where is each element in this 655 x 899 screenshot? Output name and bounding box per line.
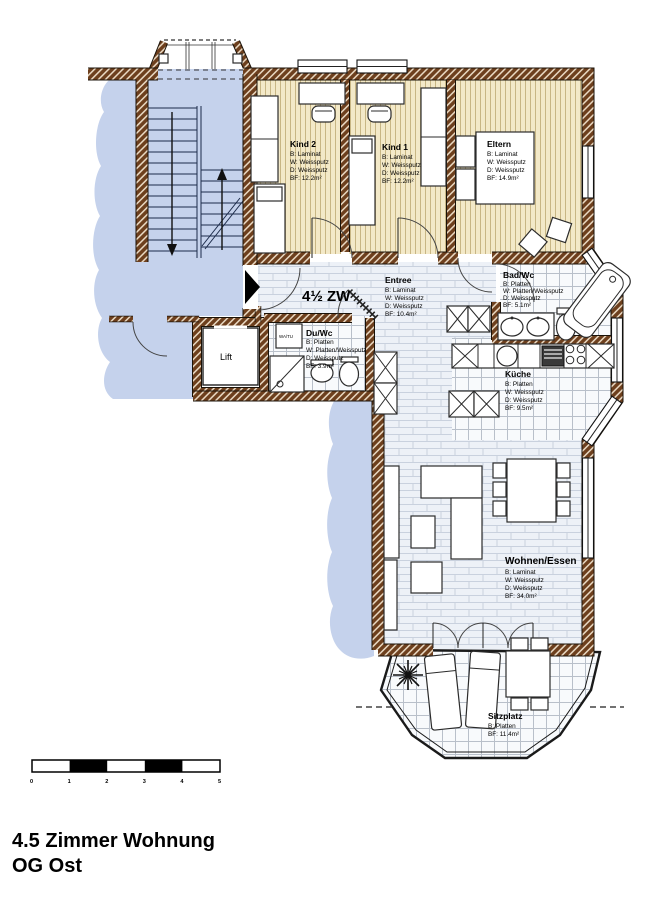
kind2-desk [299, 83, 345, 104]
badwc-area: BF: 5.1m² [503, 302, 531, 309]
kueche-walls: W: Weissputz [505, 389, 544, 396]
kind2-walls: W: Weissputz [290, 159, 329, 166]
wohnen-area: BF: 34.0m² [505, 593, 537, 600]
terrace-chair [511, 638, 528, 650]
entree-floor: B: Laminat [385, 287, 416, 294]
kind1-desk [357, 83, 404, 104]
duwc-name: Du/Wc [306, 328, 333, 338]
duwc-toilet [341, 357, 358, 362]
floor-plan-drawing: Lift WA/TU [0, 0, 655, 899]
window-kind2 [298, 60, 347, 73]
floor-plan-page: Lift WA/TU [0, 0, 655, 899]
kueche-area: BF: 9.5m² [505, 405, 533, 412]
terrace-chair [531, 638, 548, 650]
sitzplatz-name: Sitzplatz [488, 711, 522, 721]
sofa [451, 498, 482, 559]
kueche-fixtures [452, 344, 614, 368]
scale-tick: 3 [143, 779, 146, 785]
entree-walls: W: Weissputz [385, 295, 424, 302]
apartment-type-label: 4½ ZW [302, 288, 351, 305]
wohnen-name: Wohnen/Essen [505, 556, 577, 567]
title-line-1: 4.5 Zimmer Wohnung [12, 830, 215, 852]
eltern-name: Eltern [487, 139, 511, 149]
terrace-chair [511, 698, 528, 710]
title-line-2: OG Ost [12, 855, 82, 877]
badwc-ceiling: D: Weissputz [503, 295, 541, 302]
wohnen-floor: B: Laminat [505, 569, 536, 576]
lift: Lift [203, 327, 258, 385]
kueche-name: Küche [505, 369, 531, 379]
duwc-walls: W: Platten/Weissputz [306, 347, 367, 354]
kind1-area: BF: 12.2m² [382, 178, 414, 185]
scale-tick: 2 [105, 779, 108, 785]
eltern-walls: W: Weissputz [487, 159, 526, 166]
badwc-name: Bad/Wc [503, 270, 534, 280]
scale-tick: 5 [218, 779, 221, 785]
common-area-side-strip [327, 398, 374, 659]
window-kind1 [357, 60, 407, 73]
kind2-area: BF: 12.2m² [290, 175, 322, 182]
window-wohnen [583, 458, 594, 558]
kind1-ceiling: D: Weissputz [382, 170, 420, 177]
sitzplatz-floor: B: Platten [488, 723, 516, 730]
wohnen-ceiling: D: Weissputz [505, 585, 543, 592]
badwc-walls: W: Platten/Weissputz [503, 288, 564, 295]
kind2-ceiling: D: Weissputz [290, 167, 328, 174]
window-eltern [583, 146, 594, 198]
entree-ceiling: D: Weissputz [385, 303, 423, 310]
lift-label: Lift [220, 352, 233, 362]
wohnen-walls: W: Weissputz [505, 577, 544, 584]
eltern-ceiling: D: Weissputz [487, 167, 525, 174]
entree-area: BF: 10.4m² [385, 311, 417, 318]
watu-label: WA/TU [279, 334, 293, 339]
kitchen-sink [497, 346, 517, 366]
kitchen-counter [452, 344, 614, 368]
kind2-floor: B: Laminat [290, 151, 321, 158]
kitchen-oven [542, 346, 564, 366]
dining-table [507, 459, 556, 522]
kueche-floor: B: Platten [505, 381, 533, 388]
eltern-floor: B: Laminat [487, 151, 518, 158]
sideboard [384, 466, 399, 558]
kind1-floor: B: Laminat [382, 154, 413, 161]
entree-name: Entree [385, 275, 412, 285]
duwc-floor: B: Platten [306, 339, 334, 346]
sitzplatz-area: BF: 11.4m² [488, 731, 519, 738]
terrace-chair [531, 698, 548, 710]
badwc-floor: B: Platten [503, 281, 531, 288]
plant [393, 660, 423, 690]
kind1-name: Kind 1 [382, 142, 408, 152]
sofa [421, 466, 482, 498]
coffee-table [411, 516, 435, 548]
scale-tick: 1 [68, 779, 71, 785]
kind2-name: Kind 2 [290, 139, 316, 149]
duwc-ceiling: D: Weissputz [306, 355, 344, 362]
sideboard [384, 560, 397, 630]
kueche-ceiling: D: Weissputz [505, 397, 543, 404]
scale-tick: 0 [30, 779, 33, 785]
terrace-table [506, 651, 550, 697]
kind2-chair [312, 106, 335, 122]
eltern-area: BF: 14.9m² [487, 175, 519, 182]
side-table [411, 562, 442, 593]
kind1-walls: W: Weissputz [382, 162, 421, 169]
duwc-area: BF: 3.9m² [306, 363, 334, 370]
kind1-chair [368, 106, 391, 122]
